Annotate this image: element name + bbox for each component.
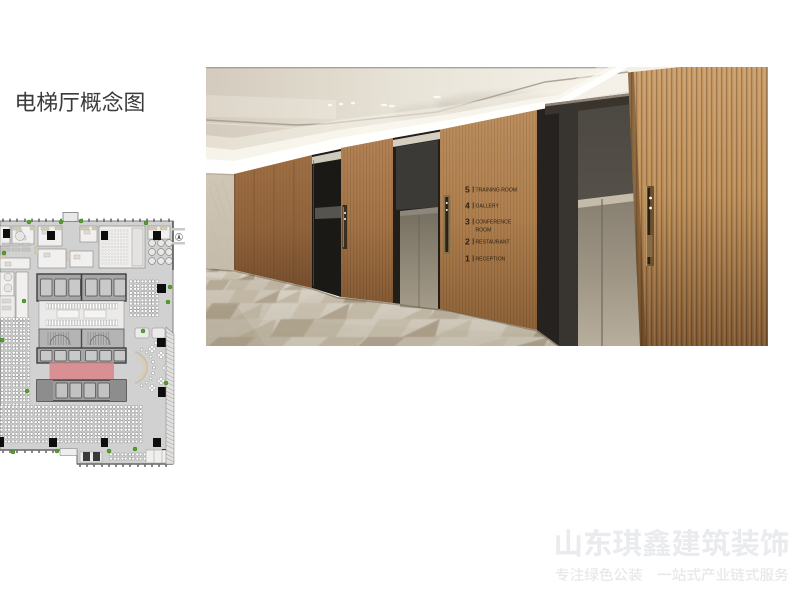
svg-text:TRAINING ROOM: TRAINING ROOM <box>476 187 518 193</box>
svg-text:ROOM: ROOM <box>476 227 492 233</box>
svg-text:CONFERENCE: CONFERENCE <box>476 219 512 225</box>
svg-text:4: 4 <box>465 201 470 211</box>
svg-text:GALLERY: GALLERY <box>476 203 500 209</box>
svg-text:RESTAURANT: RESTAURANT <box>476 239 510 245</box>
svg-text:2: 2 <box>465 237 470 247</box>
svg-text:3: 3 <box>465 217 470 227</box>
svg-text:1: 1 <box>465 254 470 264</box>
svg-text:RECEPTION: RECEPTION <box>476 256 506 262</box>
svg-text:5: 5 <box>465 185 470 195</box>
